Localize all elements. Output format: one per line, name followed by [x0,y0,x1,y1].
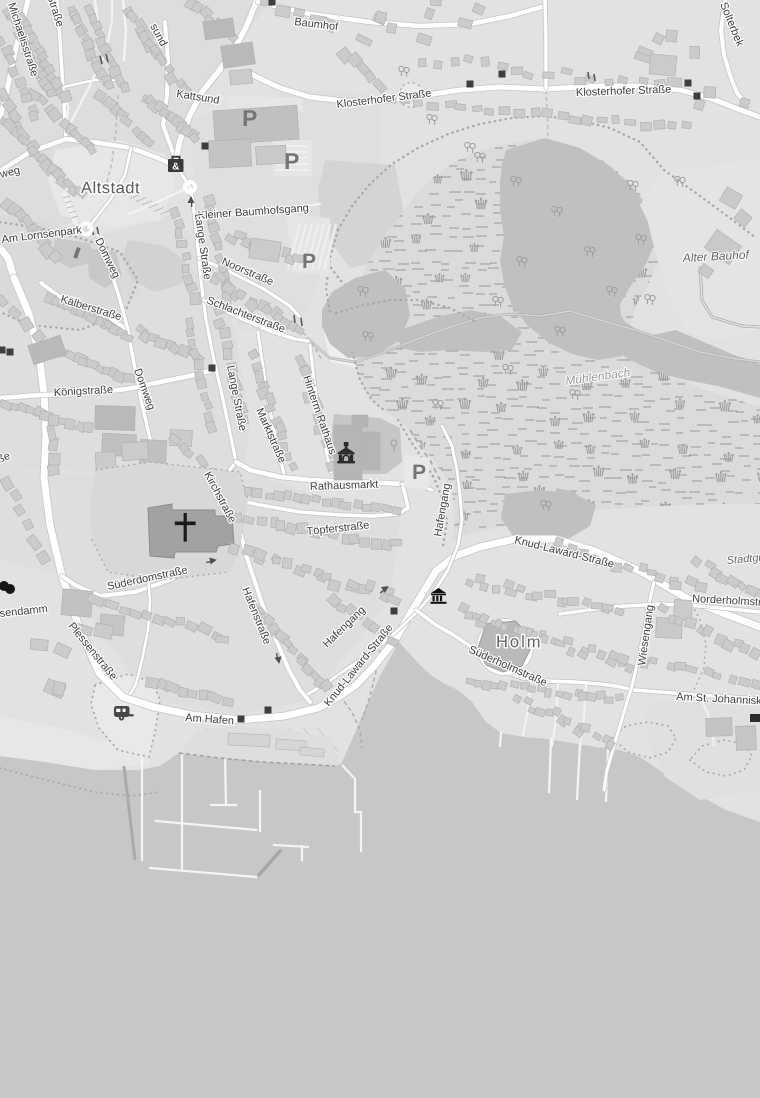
svg-text:Rathausmarkt: Rathausmarkt [310,479,379,493]
svg-text:P: P [302,250,316,273]
svg-text:Holm: Holm [496,633,543,651]
svg-text:P: P [412,461,426,484]
svg-text:&: & [172,161,179,172]
svg-text:P: P [284,148,300,174]
svg-text:Altstadt: Altstadt [81,179,140,197]
svg-text:P: P [242,105,258,131]
